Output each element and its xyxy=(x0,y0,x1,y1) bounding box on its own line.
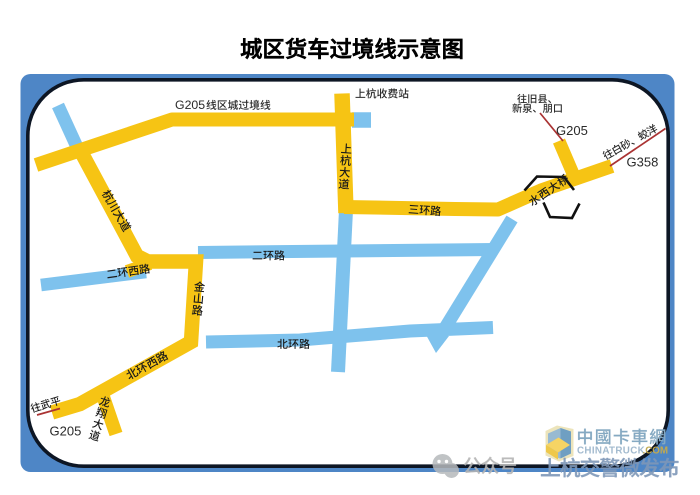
svg-text:.COM: .COM xyxy=(643,446,669,457)
svg-text:G205: G205 xyxy=(556,123,588,138)
svg-text:G205: G205 xyxy=(50,424,82,439)
svg-text:G358: G358 xyxy=(627,155,659,170)
svg-text:CHINATRUCK: CHINATRUCK xyxy=(577,446,645,457)
svg-text:G205: G205 xyxy=(175,98,205,112)
